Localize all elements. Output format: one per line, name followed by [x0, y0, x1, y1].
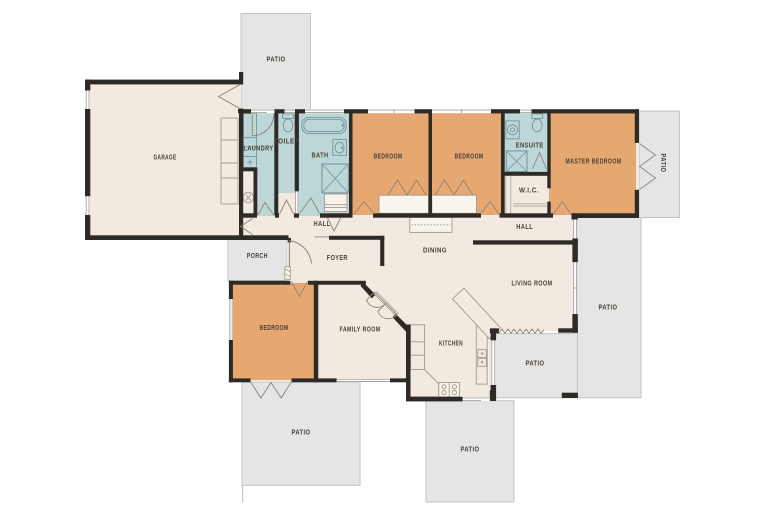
svg-text:ENSUITE: ENSUITE [516, 142, 544, 149]
svg-text:TOILET: TOILET [274, 139, 299, 146]
svg-text:FOYER: FOYER [327, 255, 348, 262]
svg-text:KITCHEN: KITCHEN [439, 340, 463, 347]
svg-text:BEDROOM: BEDROOM [260, 325, 289, 332]
svg-text:HALL: HALL [314, 221, 331, 228]
svg-text:W.I.C.: W.I.C. [519, 188, 539, 195]
svg-text:PATIO: PATIO [599, 304, 618, 311]
svg-text:BATH: BATH [312, 152, 329, 159]
svg-text:LIVING ROOM: LIVING ROOM [512, 281, 553, 288]
svg-text:GARAGE: GARAGE [154, 155, 177, 162]
svg-text:HALL: HALL [516, 224, 533, 231]
svg-text:BEDROOM: BEDROOM [374, 153, 403, 160]
svg-text:PATIO: PATIO [526, 360, 545, 367]
svg-text:FAMILY ROOM: FAMILY ROOM [340, 327, 381, 334]
svg-text:PATIO: PATIO [267, 57, 286, 64]
svg-text:PATIO: PATIO [292, 429, 311, 436]
svg-text:PATIO: PATIO [461, 446, 480, 453]
svg-text:PATIO: PATIO [659, 154, 666, 173]
svg-text:LAUNDRY: LAUNDRY [244, 146, 274, 153]
svg-text:PORCH: PORCH [247, 253, 268, 260]
svg-text:DINING: DINING [423, 247, 447, 254]
svg-text:MASTER BEDROOM: MASTER BEDROOM [566, 158, 622, 165]
svg-text:BEDROOM: BEDROOM [455, 153, 484, 160]
